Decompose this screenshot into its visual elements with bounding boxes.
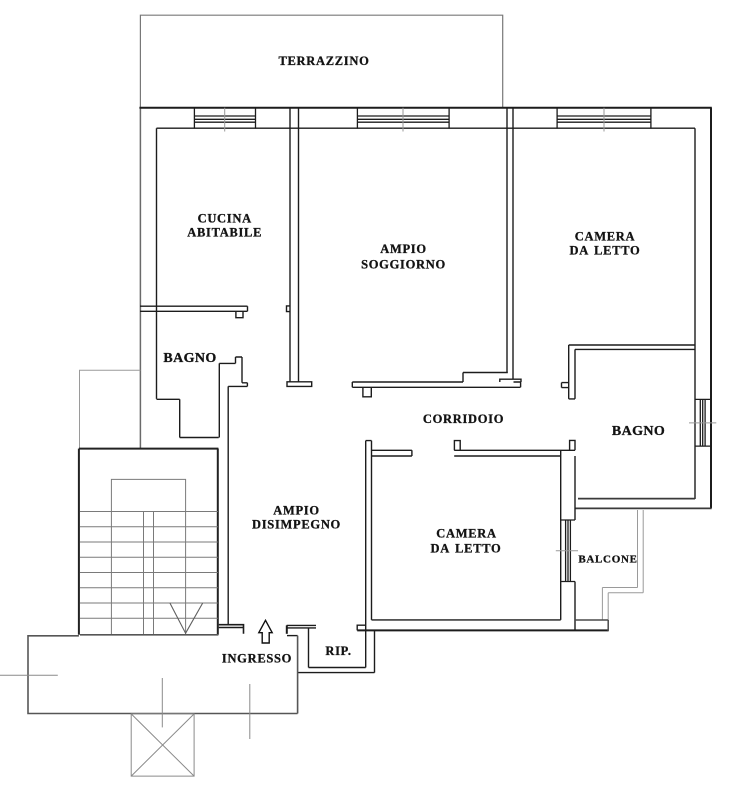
- svg-text:AMPIO: AMPIO: [380, 242, 427, 256]
- svg-text:SOGGIORNO: SOGGIORNO: [361, 258, 446, 272]
- svg-text:INGRESSO: INGRESSO: [222, 652, 292, 666]
- svg-text:TERRAZZINO: TERRAZZINO: [278, 54, 369, 68]
- svg-text:RIP.: RIP.: [325, 644, 351, 658]
- svg-text:CAMERA: CAMERA: [436, 527, 496, 541]
- svg-text:CORRIDOIO: CORRIDOIO: [423, 412, 504, 426]
- svg-text:BAGNO: BAGNO: [612, 424, 665, 439]
- svg-text:CAMERA: CAMERA: [575, 229, 635, 243]
- svg-text:DA LETTO: DA LETTO: [570, 243, 641, 257]
- svg-text:BALCONE: BALCONE: [578, 554, 637, 566]
- svg-text:BAGNO: BAGNO: [163, 351, 216, 366]
- svg-text:DA LETTO: DA LETTO: [431, 541, 502, 555]
- svg-text:CUCINA: CUCINA: [198, 212, 252, 226]
- svg-text:AMPIO: AMPIO: [273, 503, 320, 517]
- svg-text:ABITABILE: ABITABILE: [187, 226, 262, 240]
- svg-text:DISIMPEGNO: DISIMPEGNO: [252, 517, 341, 531]
